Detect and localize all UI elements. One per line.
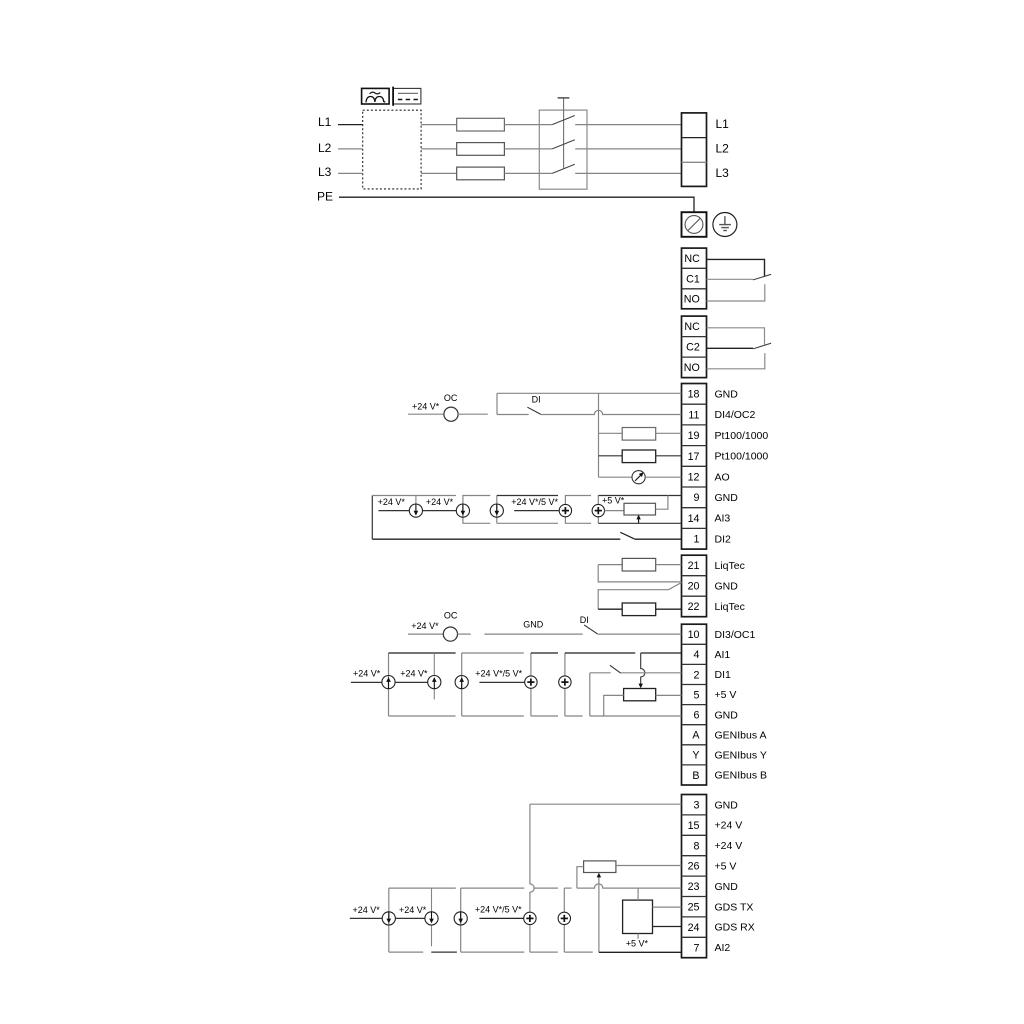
svg-text:NC: NC	[684, 253, 700, 265]
svg-text:A: A	[692, 730, 700, 742]
svg-text:8: 8	[694, 840, 700, 852]
svg-text:L2: L2	[318, 141, 332, 155]
svg-text:20: 20	[688, 581, 700, 593]
svg-text:+24 V*: +24 V*	[426, 497, 454, 507]
svg-text:19: 19	[688, 430, 700, 442]
svg-text:+5 V*: +5 V*	[602, 496, 625, 506]
svg-text:26: 26	[688, 861, 700, 873]
svg-text:3: 3	[694, 800, 700, 812]
svg-text:9: 9	[694, 492, 700, 504]
svg-text:GENIbus B: GENIbus B	[715, 770, 768, 782]
svg-text:DI: DI	[580, 615, 589, 625]
svg-text:2: 2	[694, 669, 700, 681]
svg-text:+24 V: +24 V	[715, 820, 743, 832]
svg-text:B: B	[692, 770, 699, 782]
svg-text:7: 7	[694, 942, 700, 954]
svg-text:DI: DI	[532, 395, 541, 405]
svg-text:18: 18	[688, 389, 700, 401]
svg-text:C2: C2	[686, 342, 700, 354]
svg-text:5: 5	[694, 689, 700, 701]
svg-text:NO: NO	[684, 362, 700, 374]
svg-text:+24 V*: +24 V*	[411, 621, 439, 631]
svg-text:6: 6	[694, 710, 700, 722]
svg-text:DI1: DI1	[715, 669, 732, 681]
svg-text:+5 V: +5 V	[715, 861, 737, 873]
svg-text:+5 V*: +5 V*	[626, 939, 649, 949]
svg-text:L3: L3	[318, 165, 332, 179]
svg-text:11: 11	[688, 409, 699, 421]
svg-text:AI3: AI3	[715, 513, 731, 525]
svg-text:+24 V*: +24 V*	[399, 905, 427, 915]
svg-text:L3: L3	[716, 166, 730, 180]
svg-text:GND: GND	[715, 881, 739, 893]
svg-text:OC: OC	[444, 611, 458, 621]
svg-text:10: 10	[688, 629, 700, 641]
svg-text:AI2: AI2	[715, 942, 731, 954]
svg-text:NO: NO	[684, 294, 700, 306]
svg-text:Pt100/1000: Pt100/1000	[715, 451, 769, 463]
svg-text:14: 14	[688, 513, 700, 525]
svg-text:25: 25	[688, 902, 700, 914]
svg-text:OC: OC	[444, 393, 458, 403]
svg-text:L2: L2	[716, 142, 730, 156]
svg-text:24: 24	[688, 922, 700, 934]
svg-text:+24 V*/5 V*: +24 V*/5 V*	[475, 905, 522, 915]
svg-text:+24 V*: +24 V*	[412, 402, 440, 412]
svg-text:AO: AO	[715, 471, 730, 483]
svg-text:21: 21	[688, 560, 700, 572]
svg-text:+24 V*: +24 V*	[353, 905, 381, 915]
svg-text:+5 V: +5 V	[715, 689, 737, 701]
svg-text:GND: GND	[715, 389, 739, 401]
svg-text:GND: GND	[715, 492, 739, 504]
svg-text:GDS TX: GDS TX	[715, 901, 754, 913]
svg-text:+24 V*/5 V*: +24 V*/5 V*	[511, 497, 558, 507]
svg-text:GND: GND	[715, 581, 739, 593]
svg-text:AI1: AI1	[715, 649, 731, 661]
svg-text:LiqTec: LiqTec	[715, 560, 745, 572]
svg-text:LiqTec: LiqTec	[715, 601, 745, 613]
svg-text:17: 17	[688, 451, 700, 463]
svg-text:Pt100/1000: Pt100/1000	[715, 430, 769, 442]
svg-text:+24 V*: +24 V*	[400, 669, 428, 679]
svg-text:15: 15	[688, 820, 700, 832]
svg-text:GDS RX: GDS RX	[715, 922, 755, 934]
svg-text:Y: Y	[692, 750, 699, 762]
svg-text:12: 12	[688, 472, 700, 484]
svg-text:GENIbus A: GENIbus A	[715, 729, 767, 741]
svg-text:L1: L1	[716, 117, 730, 131]
svg-text:DI3/OC1: DI3/OC1	[715, 629, 756, 641]
svg-text:+24 V: +24 V	[715, 840, 743, 852]
svg-text:DI2: DI2	[715, 533, 732, 545]
svg-text:1: 1	[694, 534, 700, 546]
svg-text:+24 V*/5 V*: +24 V*/5 V*	[475, 668, 522, 678]
svg-text:PE: PE	[317, 189, 333, 203]
svg-text:DI4/OC2: DI4/OC2	[715, 409, 756, 421]
svg-text:GENIbus Y: GENIbus Y	[715, 750, 767, 762]
svg-text:GND: GND	[715, 709, 739, 721]
svg-text:+24 V*: +24 V*	[378, 497, 406, 507]
svg-text:23: 23	[688, 881, 700, 893]
svg-text:C1: C1	[686, 273, 700, 285]
svg-text:L1: L1	[318, 115, 332, 129]
svg-text:22: 22	[688, 601, 700, 613]
svg-text:+24 V*: +24 V*	[353, 669, 381, 679]
svg-text:GND: GND	[523, 619, 544, 629]
svg-text:GND: GND	[715, 799, 739, 811]
svg-text:4: 4	[694, 649, 700, 661]
svg-text:NC: NC	[684, 321, 700, 333]
